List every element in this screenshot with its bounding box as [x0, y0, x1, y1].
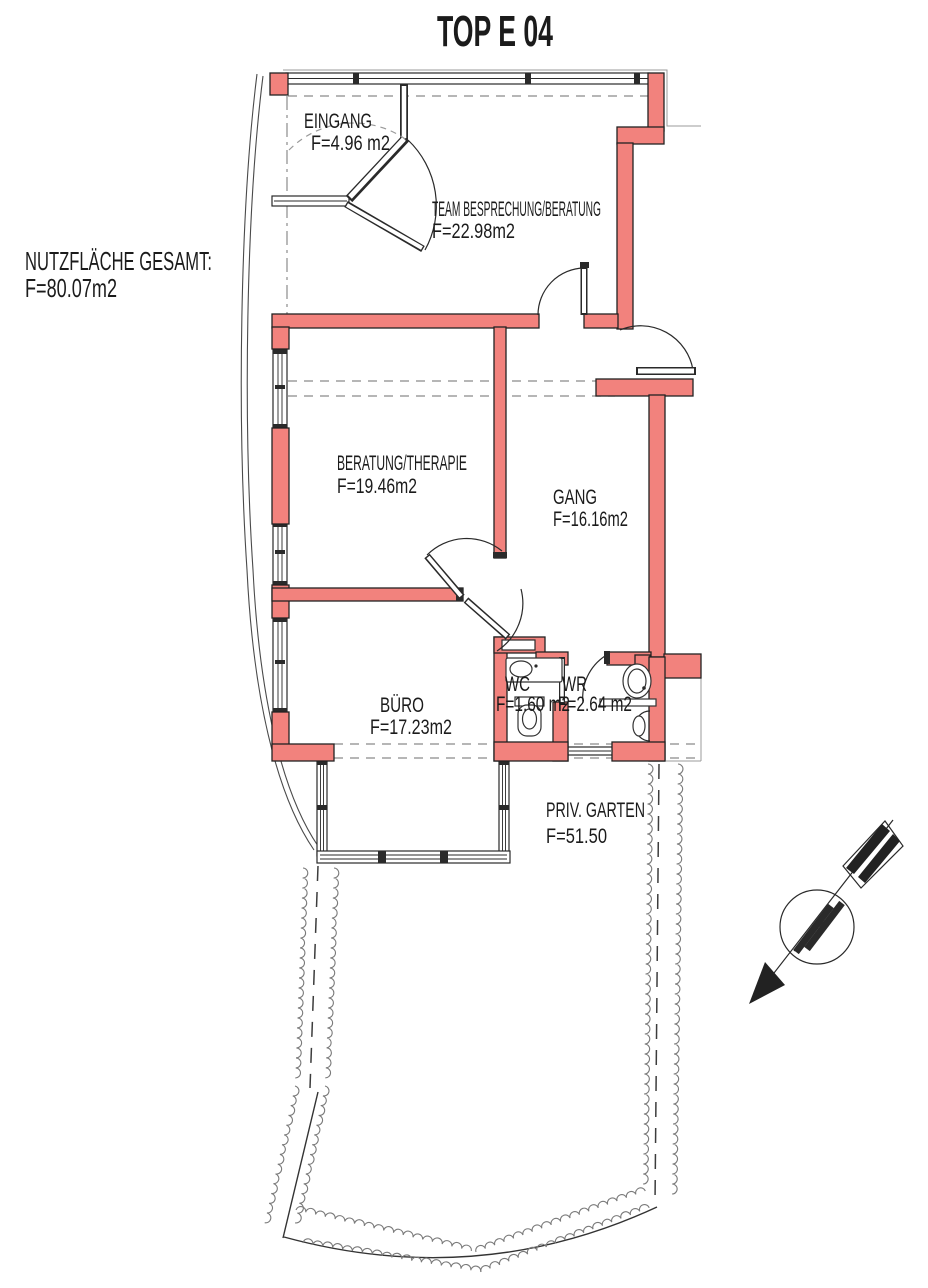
total-area-label: NUTZFLÄCHE GESAMT:: [25, 246, 212, 276]
beratung-door-swing: [427, 538, 502, 555]
wall-segment: [617, 127, 664, 144]
plan-line: [273, 349, 287, 354]
floor-plan-drawing: TOP E 04 NUTZFLÄCHE GESAMT: F=80.07m2 EI…: [0, 0, 928, 1288]
room-label-gang: GANG: [553, 486, 597, 509]
garden-boundary-dashed: [310, 866, 318, 1088]
hedge-line: [672, 764, 683, 1194]
floor-plan-page: TOP E 04 NUTZFLÄCHE GESAMT: F=80.07m2 EI…: [0, 0, 928, 1288]
garden-boundary-curve: [284, 1207, 657, 1258]
wall-segment: [584, 314, 618, 328]
wall-segment: [272, 327, 289, 349]
room-label-garten: PRIV. GARTEN: [546, 799, 645, 822]
wall-segment: [664, 654, 701, 678]
wall-segment: [272, 712, 289, 745]
wall-segment: [494, 327, 506, 558]
wall-segment: [270, 73, 288, 95]
plan-line: [633, 716, 645, 736]
room-label-beratung: BERATUNG/THERAPIE: [337, 452, 467, 475]
terrace-glazing: [317, 760, 510, 863]
plan-line: [634, 73, 640, 84]
room-label-team: TEAM BESPRECHUNG/BERATUNG: [432, 198, 601, 221]
north-arrow-icon: [749, 820, 903, 1004]
room-area-garten: F=51.50: [546, 825, 607, 848]
hedge-line: [476, 1188, 646, 1252]
room-label-buero: BÜRO: [380, 694, 424, 717]
labels: TOP E 04 NUTZFLÄCHE GESAMT: F=80.07m2 EI…: [25, 7, 645, 848]
walls: [270, 73, 701, 761]
wall-segment: [272, 744, 334, 761]
wall-segment: [272, 428, 289, 524]
plan-line: [493, 552, 507, 558]
wall-segment: [494, 742, 568, 761]
gang-door-swing: [620, 326, 693, 370]
room-label-eingang: EINGANG: [304, 110, 372, 133]
wall-segment: [272, 588, 463, 601]
plan-line: [353, 73, 359, 84]
plan-line: [604, 651, 610, 664]
arrow-feather-outline: [843, 821, 903, 888]
wall-segment: [272, 314, 539, 328]
hedge-line: [325, 868, 338, 1078]
plan-line: [275, 550, 285, 554]
plan-line: [347, 205, 422, 248]
wall-segment: [612, 742, 665, 761]
hedge-line: [295, 1086, 329, 1223]
plan-line: [794, 904, 842, 951]
wall-segment: [648, 73, 664, 131]
hedge-line: [265, 1086, 299, 1223]
garden-boundary-dashed: [655, 764, 659, 1204]
room-area-buero: F=17.23m2: [370, 716, 452, 739]
room-area-team: F=22.98m2: [432, 220, 515, 243]
wc-niche: [502, 640, 535, 650]
plan-line: [499, 805, 509, 810]
wall-segment: [596, 379, 693, 396]
room-area-wr: F=2.64 m2: [558, 693, 632, 716]
arrow-head: [749, 962, 785, 1004]
room-area-gang: F=16.16m2: [553, 508, 628, 531]
plan-line: [440, 851, 448, 863]
plan-line: [378, 851, 386, 863]
total-area-value: F=80.07m2: [25, 273, 117, 303]
page-title: TOP E 04: [437, 7, 553, 56]
left-windows: [273, 349, 287, 713]
plan-line: [525, 73, 531, 84]
wall-segment: [617, 143, 633, 329]
room-area-beratung: F=19.46m2: [337, 475, 417, 498]
plan-line: [275, 385, 285, 389]
hedge-line: [295, 868, 307, 1078]
plan-line: [275, 660, 285, 664]
plan-line: [467, 601, 507, 636]
room-area-eingang: F=4.96 m2: [311, 132, 390, 155]
plan-line: [534, 664, 537, 667]
team-door-swing: [538, 268, 584, 315]
plan-line: [317, 805, 327, 810]
plan-line: [317, 851, 510, 863]
hedge-line: [643, 764, 653, 1184]
plan-line: [642, 686, 646, 690]
plan-line: [273, 617, 287, 713]
wall-segment: [649, 395, 665, 657]
